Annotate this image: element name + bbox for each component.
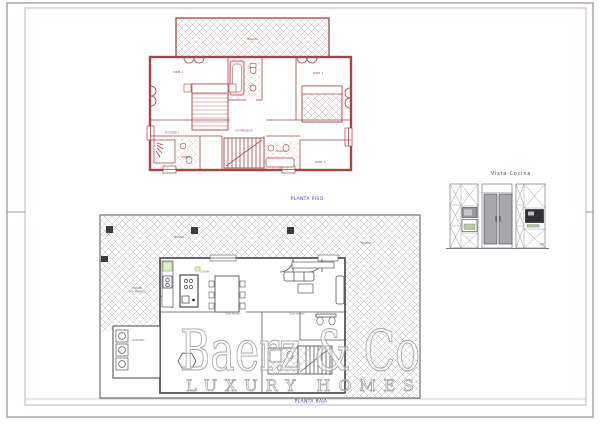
upper-bathroom-2 (263, 141, 299, 169)
watermark: Baerz & Co LUXURY HOMES (180, 319, 420, 395)
upper-bed-2 (302, 86, 342, 122)
upper-dorm3-label: DORM. 3 (315, 161, 326, 164)
upper-vestidor-label: VESTIDOR 1 (165, 132, 180, 135)
sofa (284, 272, 314, 281)
porche-label-2: SUP. TERRAZA (129, 291, 146, 294)
kitchen-right-cabinet (516, 184, 545, 248)
cota-label-2: Cota de piso (290, 313, 305, 316)
sofa-side (336, 276, 344, 304)
upper-bano1-label: BAÑO 1 (181, 156, 191, 159)
lower-terraza-right-label: TERRAZA (360, 242, 371, 245)
upper-terrace-label: TERRAZA (246, 38, 257, 41)
lavadero-label: LAVADERO (132, 339, 145, 342)
kitchen-left-cabinet (450, 184, 478, 248)
laundry-room (113, 326, 160, 378)
fridge-door-left (484, 194, 497, 244)
cocina-label: COCINA (200, 271, 210, 274)
upper-floor-plan: TERRAZA (147, 18, 352, 202)
upper-bed-1 (184, 84, 236, 130)
upper-bathroom-1 (229, 58, 261, 100)
upper-stairs (224, 138, 264, 168)
kitchen-elevation: Vista Cocina (446, 171, 549, 249)
upper-plan-caption: PLANTA PISO (291, 196, 324, 202)
cota-label-1: Cota de piso (226, 313, 241, 316)
upper-dorm1-label: DORM. 1 (173, 71, 184, 74)
watermark-brand: Baerz & Co (180, 319, 420, 384)
upper-bathroom-3 (152, 138, 199, 169)
lower-terrace-left (101, 216, 158, 332)
lower-terraza-top-label: TERRAZA (173, 236, 184, 239)
coffee-machine (526, 210, 544, 223)
fridge-door-right (499, 194, 512, 244)
drawing-sheet: TERRAZA (0, 0, 600, 424)
lower-plan-caption: PLANTA BAJA (295, 399, 328, 405)
kitchen-view-title: Vista Cocina (491, 171, 531, 177)
upper-bano2-label: BAÑO 2 (276, 150, 286, 153)
plan-canvas: TERRAZA (0, 0, 600, 424)
kitchen-green-unit (163, 262, 172, 271)
upper-dorm2-label: DORM. 2 (313, 72, 324, 75)
coffee-table (298, 284, 313, 293)
upper-distribuidor-label: DISTRIBUIDOR (235, 130, 253, 133)
kitchen-tall-unit (482, 184, 512, 248)
